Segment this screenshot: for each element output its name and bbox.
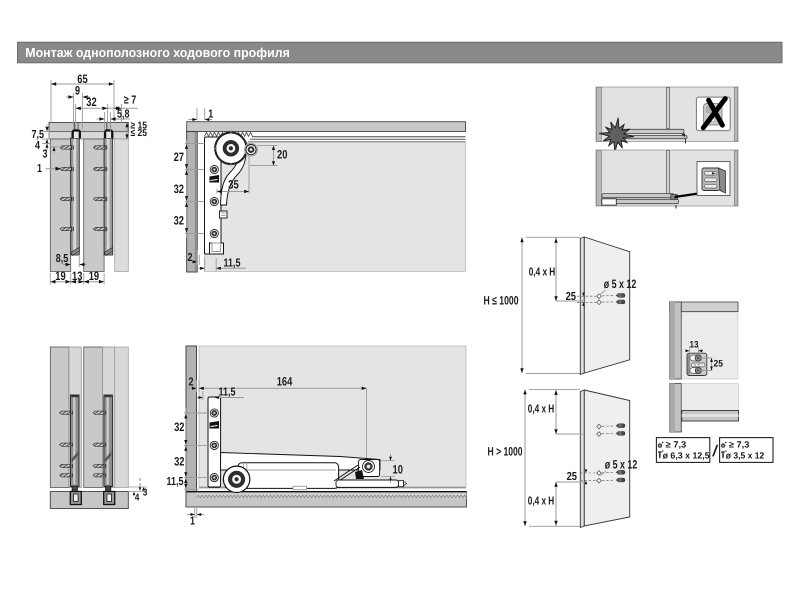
svg-text:32: 32 — [174, 182, 185, 196]
svg-text:11,5: 11,5 — [224, 257, 241, 270]
svg-text:35: 35 — [228, 178, 239, 192]
svg-text:25: 25 — [714, 359, 724, 370]
svg-text:≥ 7,3: ≥ 7,3 — [666, 440, 687, 450]
svg-text:1: 1 — [37, 162, 42, 175]
svg-text:32: 32 — [174, 214, 185, 228]
svg-text:3: 3 — [43, 148, 48, 161]
svg-text:ø 3,5 x 12: ø 3,5 x 12 — [726, 450, 765, 460]
svg-text:32: 32 — [174, 420, 185, 434]
svg-text:9: 9 — [75, 84, 80, 98]
svg-text:0,4 x H: 0,4 x H — [528, 403, 555, 416]
svg-text:H ≤ 1000: H ≤ 1000 — [484, 294, 519, 308]
svg-text:2: 2 — [188, 251, 193, 264]
svg-text:8,5: 8,5 — [56, 252, 69, 265]
svg-text:≤ 25: ≤ 25 — [131, 128, 148, 139]
svg-text:H > 1000: H > 1000 — [488, 445, 523, 459]
svg-text:0,4 x H: 0,4 x H — [529, 266, 556, 279]
svg-text:11,5: 11,5 — [219, 386, 236, 399]
svg-text:3: 3 — [143, 488, 148, 499]
svg-text:13: 13 — [690, 340, 699, 351]
svg-text:ø 6,3 x 12,5: ø 6,3 x 12,5 — [663, 450, 710, 460]
svg-text:32: 32 — [86, 95, 97, 109]
svg-text:20: 20 — [277, 148, 288, 162]
svg-text:25: 25 — [567, 470, 578, 483]
svg-text:ø 5 x 12: ø 5 x 12 — [605, 458, 638, 472]
svg-text:4: 4 — [35, 139, 40, 152]
svg-text:2: 2 — [189, 376, 194, 389]
svg-text:0,4 x H: 0,4 x H — [528, 495, 555, 508]
svg-text:ø 5 x 12: ø 5 x 12 — [604, 277, 637, 291]
svg-text:1: 1 — [190, 515, 195, 528]
svg-text:≥ 7,3: ≥ 7,3 — [729, 440, 750, 450]
svg-text:19: 19 — [55, 269, 66, 283]
svg-text:27: 27 — [174, 150, 185, 164]
svg-text:32: 32 — [174, 455, 185, 469]
svg-text:Монтаж однополозного ходового: Монтаж однополозного ходового профиля — [25, 45, 290, 60]
svg-text:4: 4 — [135, 493, 140, 504]
svg-text:11,5: 11,5 — [167, 475, 184, 488]
svg-text:164: 164 — [277, 375, 293, 389]
svg-text:5,8: 5,8 — [117, 108, 130, 121]
svg-text:≥ 7: ≥ 7 — [124, 93, 137, 106]
svg-text:25: 25 — [566, 290, 577, 303]
svg-text:10: 10 — [393, 463, 404, 477]
svg-text:19: 19 — [89, 269, 100, 283]
svg-text:13: 13 — [72, 269, 83, 283]
